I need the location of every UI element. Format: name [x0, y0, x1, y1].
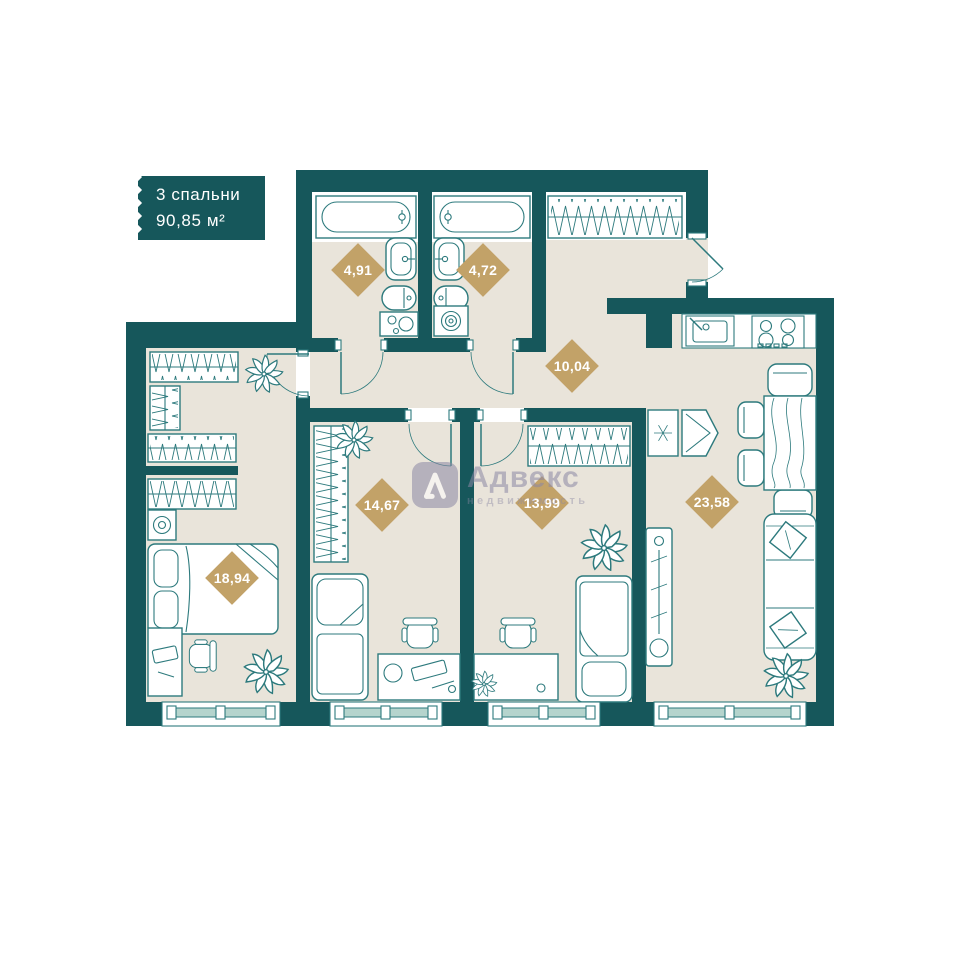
bathtub-icon [316, 196, 416, 238]
window [162, 702, 280, 726]
wardrobe-icon [150, 386, 180, 430]
window [488, 702, 600, 726]
coat-rack-icon [646, 528, 672, 666]
fridge-icon [648, 410, 678, 456]
wardrobe-icon [528, 426, 630, 466]
room-label-hallway: 10,04 [540, 334, 604, 398]
room-label-bedroom-1: 18,94 [200, 546, 264, 610]
bathtub-icon [434, 196, 530, 238]
watermark-tagline: недвижимость [467, 495, 588, 507]
badge-area: 90,85 м² [156, 211, 265, 231]
chair-icon [189, 640, 216, 672]
watermark-text: Адвекс недвижимость [467, 462, 588, 507]
wardrobe-icon [148, 479, 236, 509]
single-bed-icon [576, 576, 632, 702]
kitchen-counter [682, 314, 816, 348]
sofa-icon [764, 514, 816, 660]
room-label-bedroom-2: 14,67 [350, 473, 414, 537]
watermark-brand: Адвекс [467, 462, 588, 494]
wardrobe-icon [548, 196, 682, 238]
speaker-icon [148, 510, 176, 540]
chair-icon [500, 618, 536, 648]
single-bed-icon [312, 574, 368, 700]
badge-title: 3 спальни [156, 185, 265, 205]
kitchen-sink-icon [686, 316, 734, 346]
room-label-bathroom-2: 4,72 [451, 238, 515, 302]
sink-icon [386, 238, 416, 280]
listing-badge: 3 спальни 90,85 м² [138, 176, 265, 240]
stove-icon [752, 316, 804, 348]
room-label-kitchen-living: 23,58 [680, 470, 744, 534]
chair-icon [402, 618, 438, 648]
watermark-logo-icon [412, 462, 458, 508]
window [654, 702, 806, 726]
floor-plan-page: 3 спальни 90,85 м² 4,91 4,72 10,04 14,67… [0, 0, 960, 960]
window [330, 702, 442, 726]
washing-machine-icon [434, 306, 468, 336]
badge-diamond-ornament [130, 172, 142, 238]
wardrobe-icon [148, 434, 236, 462]
room-label-bathroom-1: 4,91 [326, 238, 390, 302]
desk-icon [378, 654, 460, 700]
dining-table-icon [764, 396, 816, 490]
vanity-icon [380, 312, 418, 336]
desk-icon [148, 628, 182, 696]
watermark: Адвекс недвижимость [412, 462, 588, 508]
wardrobe-icon [150, 352, 238, 382]
